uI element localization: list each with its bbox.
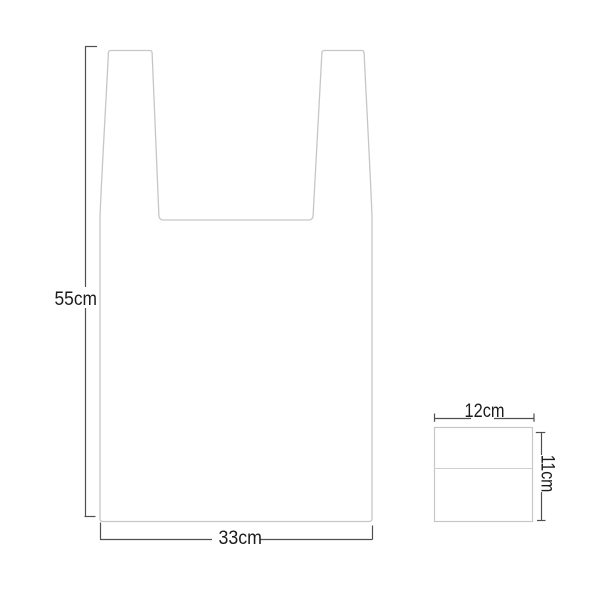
svg-text:55cm: 55cm <box>55 288 98 310</box>
svg-text:33cm: 33cm <box>219 527 263 549</box>
svg-text:11cm: 11cm <box>536 455 558 493</box>
svg-text:12cm: 12cm <box>465 400 505 422</box>
